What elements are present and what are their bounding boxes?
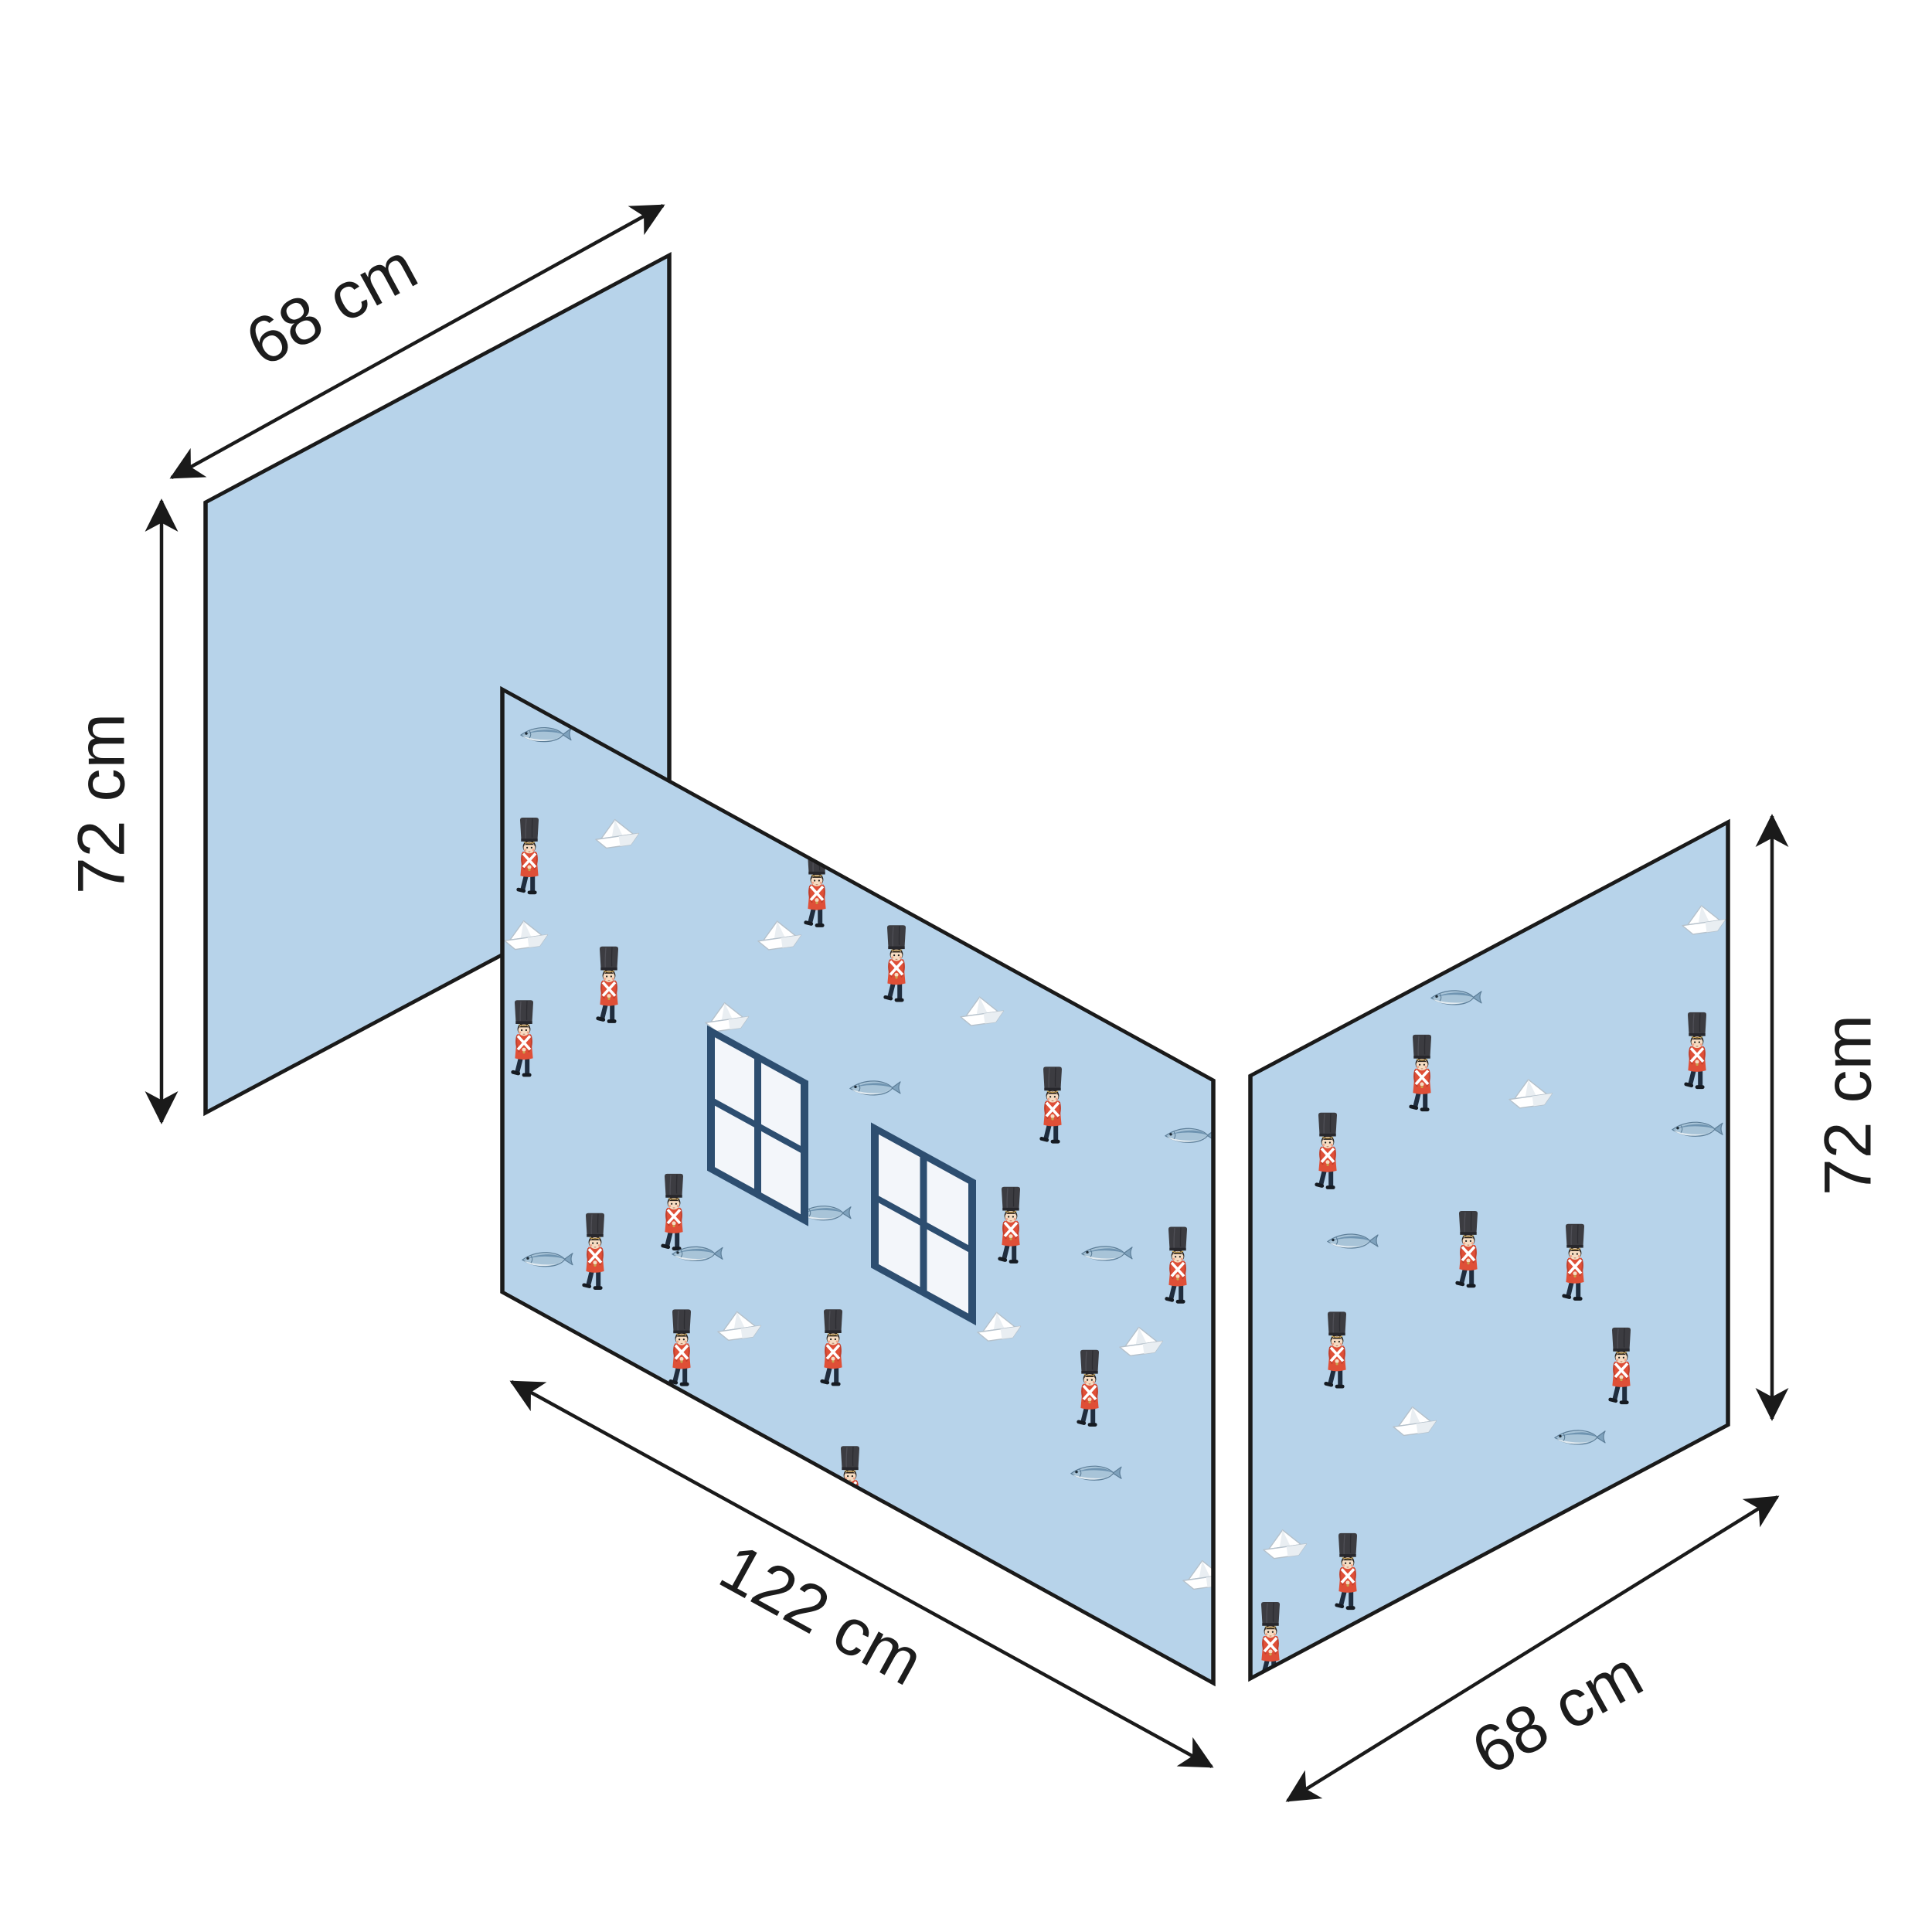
side-panel-width-label: 68 cm — [1460, 1637, 1654, 1790]
side-panel-height-label: 72 cm — [1811, 1015, 1886, 1196]
back-panel-height-label: 72 cm — [65, 713, 139, 894]
front-panel-width-label: 122 cm — [708, 1529, 934, 1699]
bed-curtain-dimension-diagram: 68 cm 72 cm 122 cm 72 cm 68 cm — [0, 0, 1932, 1932]
panel-right — [1250, 822, 1728, 1695]
back-panel-width-label: 68 cm — [234, 229, 429, 380]
panels-layer — [206, 255, 1728, 1737]
